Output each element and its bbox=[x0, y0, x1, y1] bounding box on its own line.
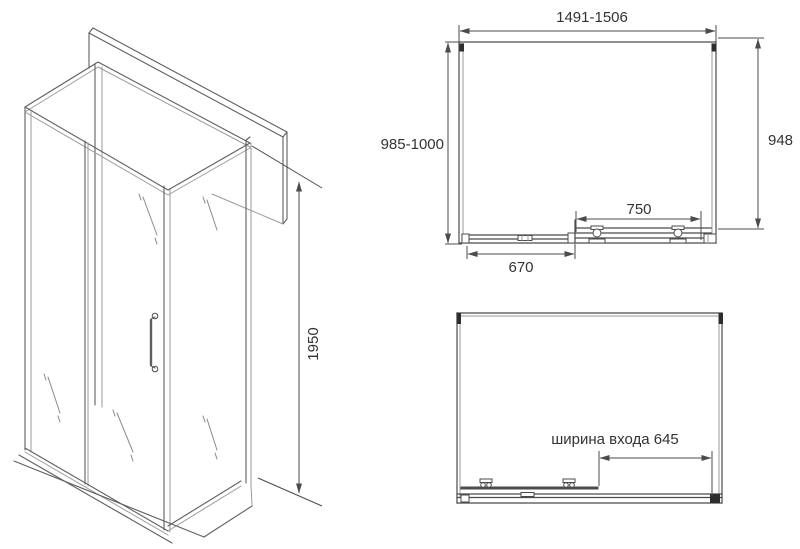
drawing-canvas: 1950 bbox=[0, 0, 800, 549]
corner-post-mark bbox=[457, 313, 462, 324]
left-post-cap bbox=[460, 44, 465, 52]
door-track-dimension-label: 750 bbox=[626, 201, 651, 218]
lower-rail-dimension-label: 670 bbox=[508, 259, 533, 276]
corner-bracket bbox=[704, 234, 716, 243]
track-end-cap bbox=[461, 495, 469, 502]
shower-enclosure-technical-drawing: 1950 bbox=[0, 0, 800, 549]
width-dimension-label: 1491-1506 bbox=[556, 9, 628, 26]
rail-end-cap bbox=[568, 233, 575, 243]
corner-post-mark bbox=[719, 313, 724, 324]
left-height-dimension-label: 985-1000 bbox=[381, 136, 444, 153]
right-height-dimension-label: 948 bbox=[768, 132, 793, 149]
background bbox=[0, 0, 800, 549]
right-post-cap bbox=[712, 44, 717, 52]
height-dimension-label: 1950 bbox=[305, 327, 322, 360]
rail-bracket bbox=[521, 493, 534, 497]
entrance-width-dimension-label: ширина входа 645 bbox=[551, 431, 679, 448]
rail-bracket bbox=[518, 236, 532, 241]
rail-end-cap bbox=[462, 234, 469, 243]
